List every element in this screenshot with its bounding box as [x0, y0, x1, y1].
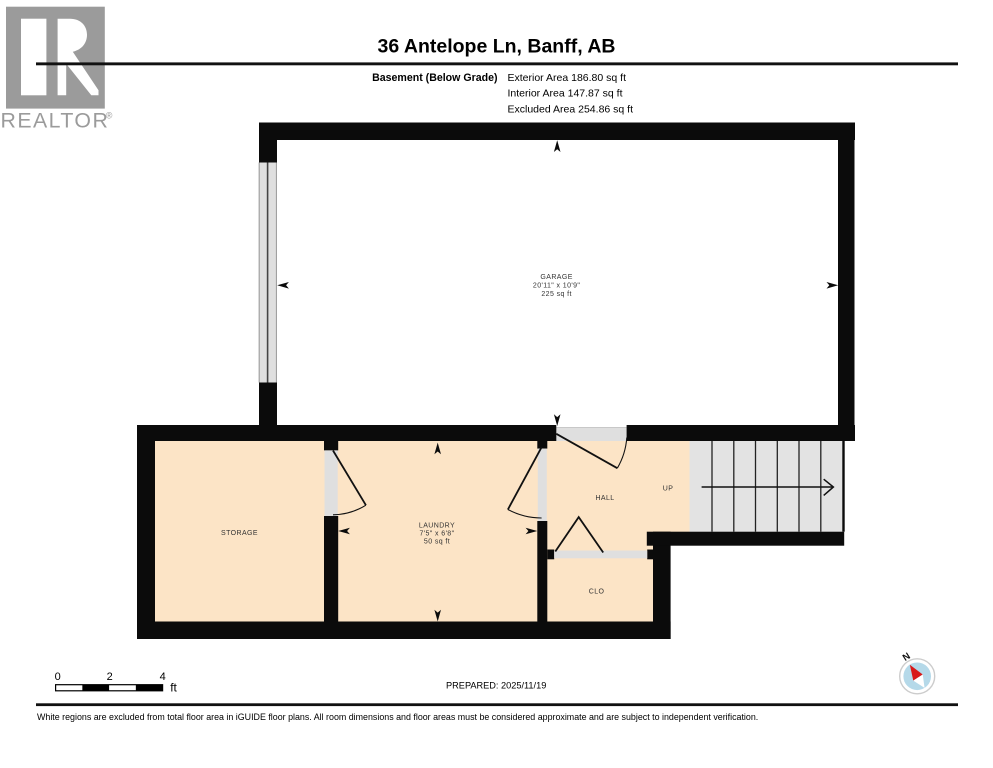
svg-text:Interior Area 147.87 sq ft: Interior Area 147.87 sq ft	[508, 88, 623, 100]
svg-text:LAUNDRY: LAUNDRY	[419, 522, 455, 529]
svg-text:ft: ft	[170, 681, 177, 695]
svg-text:STORAGE: STORAGE	[221, 530, 258, 537]
svg-text:PREPARED: 2025/11/19: PREPARED: 2025/11/19	[446, 681, 546, 691]
svg-text:36 Antelope Ln, Banff, AB: 36 Antelope Ln, Banff, AB	[378, 36, 616, 58]
svg-text:225 sq ft: 225 sq ft	[541, 291, 571, 298]
svg-text:0: 0	[55, 671, 61, 683]
svg-text:Basement (Below Grade): Basement (Below Grade)	[372, 72, 497, 84]
svg-text:Exterior Area 186.80 sq ft: Exterior Area 186.80 sq ft	[508, 72, 627, 84]
svg-text:CLO: CLO	[589, 589, 605, 596]
svg-text:REALTOR: REALTOR	[1, 109, 110, 133]
svg-text:4: 4	[160, 671, 166, 683]
svg-text:50 sq ft: 50 sq ft	[424, 538, 450, 545]
svg-text:®: ®	[106, 111, 113, 121]
svg-text:HALL: HALL	[595, 495, 614, 502]
svg-text:2: 2	[107, 671, 113, 683]
svg-text:7'5" x 6'8": 7'5" x 6'8"	[419, 530, 454, 537]
svg-text:White regions are excluded fro: White regions are excluded from total fl…	[37, 712, 758, 722]
svg-text:20'11" x 10'9": 20'11" x 10'9"	[533, 283, 580, 290]
svg-text:Excluded Area 254.86 sq ft: Excluded Area 254.86 sq ft	[508, 103, 634, 115]
svg-text:UP: UP	[663, 486, 674, 493]
svg-text:GARAGE: GARAGE	[540, 274, 572, 281]
